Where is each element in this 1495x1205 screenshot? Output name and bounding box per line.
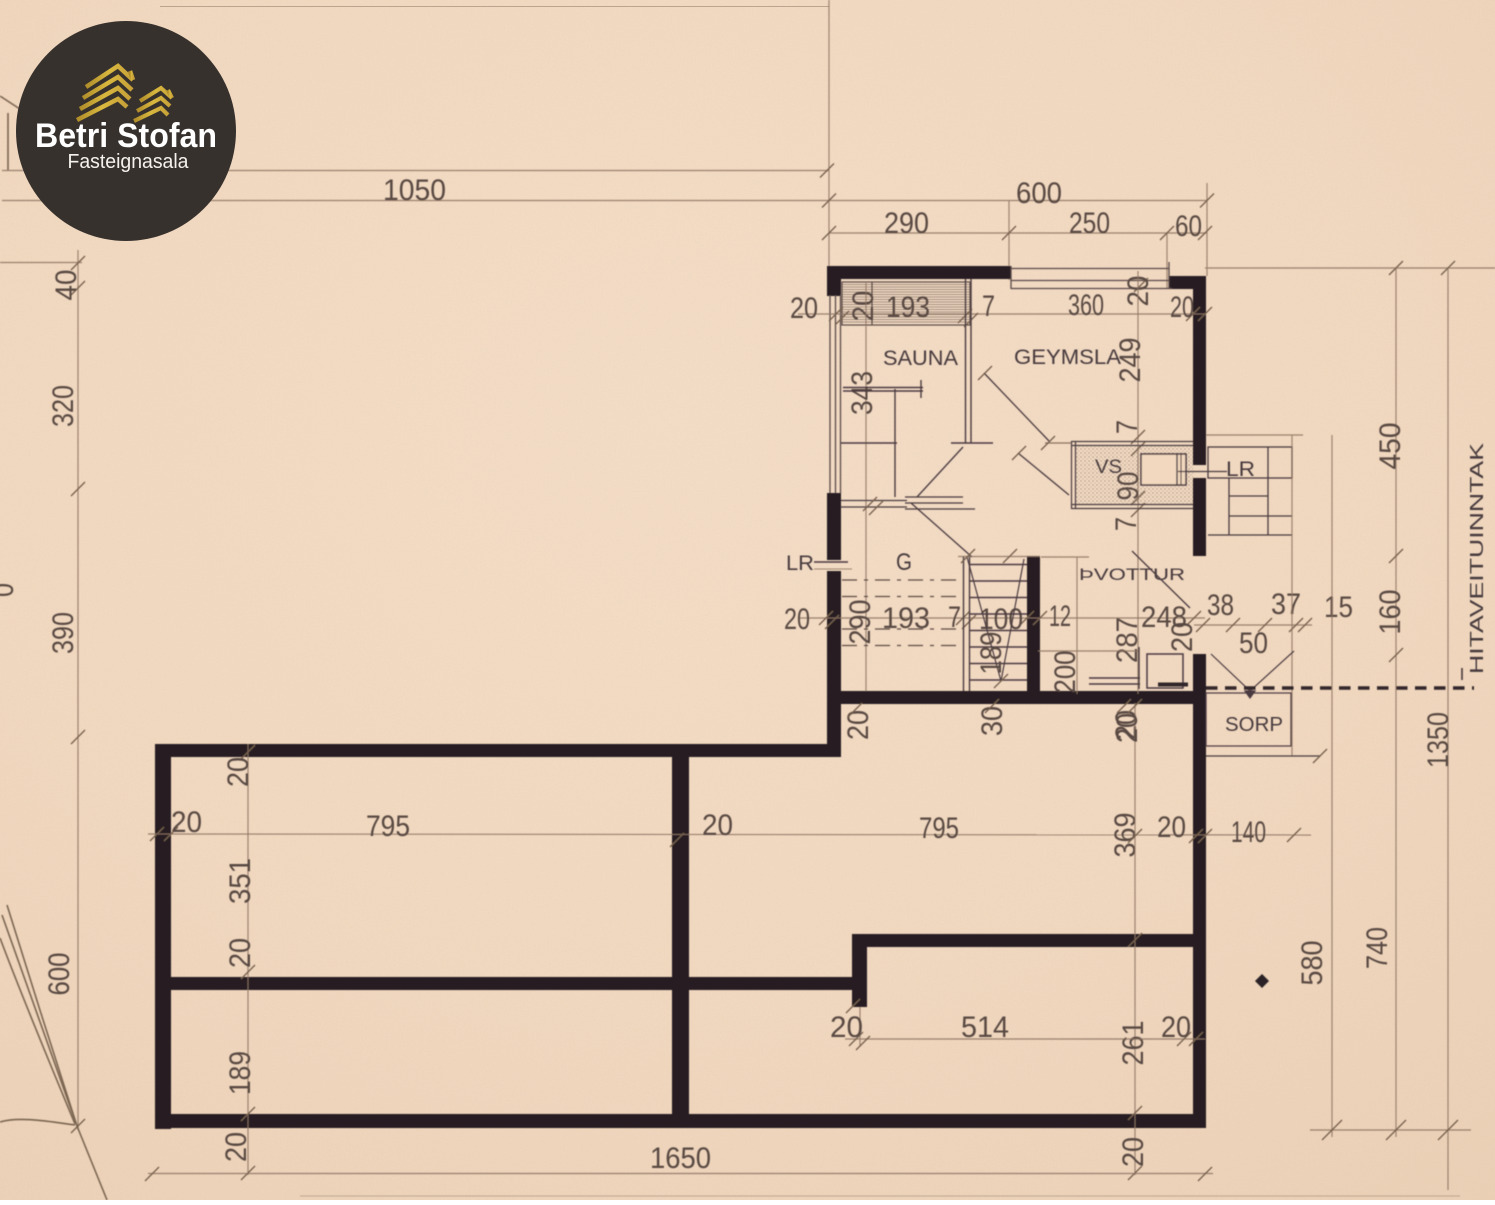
- svg-text:189: 189: [975, 632, 1008, 675]
- svg-text:250: 250: [1069, 207, 1110, 240]
- svg-text:360: 360: [1068, 289, 1104, 322]
- svg-text:189: 189: [224, 1051, 257, 1095]
- svg-text:LR: LR: [786, 552, 814, 575]
- svg-text:7: 7: [982, 290, 995, 323]
- svg-text:343: 343: [846, 371, 879, 415]
- svg-text:20: 20: [220, 1132, 253, 1162]
- svg-text:1650: 1650: [650, 1142, 711, 1175]
- svg-text:1050: 1050: [383, 174, 446, 207]
- svg-text:HITAVEITUINNTAK: HITAVEITUINNTAK: [1467, 443, 1487, 674]
- svg-text:Betri Stofan: Betri Stofan: [35, 117, 217, 155]
- svg-text:200: 200: [1049, 651, 1082, 694]
- svg-text:20: 20: [171, 806, 202, 839]
- svg-text:1350: 1350: [1422, 712, 1455, 768]
- svg-text:390: 390: [47, 612, 80, 654]
- svg-text:261: 261: [1117, 1021, 1150, 1066]
- svg-text:20: 20: [830, 1011, 863, 1044]
- svg-text:600: 600: [1016, 177, 1062, 210]
- svg-text:20: 20: [842, 710, 875, 740]
- svg-text:ÞVOTTUR: ÞVOTTUR: [1079, 565, 1185, 584]
- svg-text:40: 40: [50, 270, 83, 301]
- svg-text:38: 38: [1207, 589, 1234, 622]
- svg-text:SORP: SORP: [1225, 714, 1283, 736]
- svg-text:7: 7: [1110, 517, 1143, 531]
- svg-text:GEYMSLA: GEYMSLA: [1014, 346, 1121, 369]
- svg-text:20: 20: [222, 757, 255, 787]
- svg-text:30: 30: [976, 706, 1009, 736]
- svg-text:140: 140: [1231, 816, 1266, 849]
- svg-text:20: 20: [790, 292, 818, 325]
- svg-text:795: 795: [919, 812, 959, 845]
- svg-text:320: 320: [47, 385, 80, 427]
- svg-text:20: 20: [1111, 713, 1144, 743]
- svg-text:LR: LR: [1226, 458, 1255, 481]
- svg-text:60: 60: [1175, 210, 1202, 243]
- svg-text:600: 600: [43, 953, 76, 996]
- svg-text:20: 20: [1117, 1137, 1150, 1167]
- svg-text:50: 50: [1239, 627, 1268, 660]
- svg-text:7: 7: [948, 601, 961, 634]
- svg-text:20: 20: [1170, 291, 1194, 324]
- svg-text:20: 20: [224, 938, 257, 968]
- svg-text:VS: VS: [1095, 457, 1122, 478]
- svg-text:193: 193: [886, 291, 930, 324]
- svg-text:Fasteignasala: Fasteignasala: [68, 151, 190, 173]
- svg-text:351: 351: [224, 858, 257, 904]
- svg-text:193: 193: [882, 602, 930, 635]
- svg-text:795: 795: [366, 810, 410, 843]
- svg-text:290: 290: [844, 600, 877, 645]
- svg-text:20: 20: [1166, 622, 1199, 652]
- svg-text:20: 20: [1161, 1011, 1191, 1044]
- svg-text:12: 12: [1049, 600, 1071, 633]
- svg-text:290: 290: [884, 207, 929, 240]
- svg-text:15: 15: [1324, 591, 1353, 624]
- svg-text:20: 20: [784, 603, 810, 636]
- svg-text:450: 450: [1374, 423, 1407, 470]
- svg-text:249: 249: [1114, 338, 1147, 383]
- svg-text:514: 514: [961, 1011, 1009, 1044]
- svg-text:G: G: [896, 549, 912, 576]
- svg-text:740: 740: [1361, 927, 1394, 969]
- svg-text:580: 580: [1296, 941, 1329, 986]
- svg-text:SAUNA: SAUNA: [883, 347, 958, 370]
- svg-text:7: 7: [1111, 420, 1144, 434]
- svg-text:20: 20: [1157, 811, 1186, 844]
- svg-text:0: 0: [0, 583, 20, 597]
- svg-text:37: 37: [1271, 588, 1301, 621]
- svg-text:20: 20: [847, 291, 880, 322]
- svg-text:160: 160: [1374, 590, 1407, 635]
- svg-text:369: 369: [1109, 813, 1142, 858]
- svg-text:20: 20: [702, 809, 733, 842]
